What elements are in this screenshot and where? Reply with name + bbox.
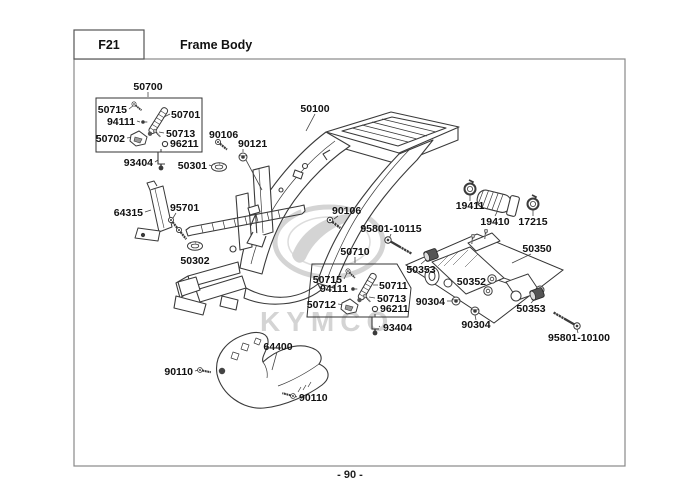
section-code: F21 xyxy=(98,38,120,52)
hose-clamp-icon xyxy=(465,180,476,195)
part-label-90304: 90304 xyxy=(416,296,445,308)
page-number: - 90 - xyxy=(337,469,363,481)
part-label-50100: 50100 xyxy=(300,103,329,115)
part-label-64315: 64315 xyxy=(114,207,143,219)
flange-bolt-icon xyxy=(384,236,413,257)
part-label-90106: 90106 xyxy=(332,205,361,217)
part-label-95701: 95701 xyxy=(170,202,199,214)
oring-icon xyxy=(372,306,377,311)
part-label-50353: 50353 xyxy=(516,303,545,315)
part-label-96211: 96211 xyxy=(170,138,199,150)
part-label-95801-10115: 95801-10115 xyxy=(360,223,421,235)
part-label-50352: 50352 xyxy=(457,276,486,288)
part-label-50700: 50700 xyxy=(133,81,162,93)
part-label-64400: 64400 xyxy=(263,341,292,353)
bracket-icon xyxy=(341,299,358,314)
part-label-95801-10100: 95801-10100 xyxy=(548,332,610,344)
part-label-50301: 50301 xyxy=(178,160,207,172)
part-label-90304: 90304 xyxy=(461,319,490,331)
oring-icon xyxy=(162,141,167,146)
grommet-icon xyxy=(188,242,203,251)
rivet-icon xyxy=(351,287,357,291)
part-label-50711: 50711 xyxy=(379,280,408,292)
clip-icon xyxy=(158,149,165,170)
page-title: Frame Body xyxy=(180,38,252,52)
nut-icon xyxy=(471,307,479,315)
hose-clamp-icon xyxy=(528,195,539,210)
washer-icon xyxy=(484,287,492,295)
rivet-icon xyxy=(141,120,147,124)
nut-icon xyxy=(452,297,460,305)
part-label-19410: 19410 xyxy=(480,216,509,228)
part-label-90110: 90110 xyxy=(299,392,328,404)
parts-catalog-page: KYMCO F21 Frame Body - 90 - xyxy=(0,0,700,495)
part-label-19411: 19411 xyxy=(456,200,485,212)
diagram-canvas: KYMCO F21 Frame Body - 90 - xyxy=(0,0,700,495)
bracket-icon xyxy=(130,131,147,146)
part-label-50712: 50712 xyxy=(307,299,336,311)
nut-icon xyxy=(239,153,247,161)
flange-bolt-icon xyxy=(552,310,581,331)
part-label-50710: 50710 xyxy=(340,246,369,258)
washer-icon xyxy=(488,275,496,283)
part-label-94111: 94111 xyxy=(320,283,348,295)
part-label-50702: 50702 xyxy=(96,133,125,145)
part-label-17215: 17215 xyxy=(518,216,547,228)
part-label-93404: 93404 xyxy=(383,322,412,334)
part-label-50701: 50701 xyxy=(171,109,200,121)
screw-icon xyxy=(175,226,188,240)
screw-icon xyxy=(197,367,211,374)
part-label-90121: 90121 xyxy=(238,138,267,150)
part-label-94111: 94111 xyxy=(107,116,135,128)
part-label-50302: 50302 xyxy=(180,255,209,267)
part-label-96211: 96211 xyxy=(380,303,409,315)
grommet-icon xyxy=(212,163,227,172)
part-label-90110: 90110 xyxy=(164,366,193,378)
part-label-50350: 50350 xyxy=(522,243,551,255)
part-label-50715: 50715 xyxy=(98,104,127,116)
footpeg-icon xyxy=(356,272,378,303)
part-label-50353: 50353 xyxy=(406,264,435,276)
part-label-90106: 90106 xyxy=(209,129,238,141)
part-label-93404: 93404 xyxy=(124,157,153,169)
